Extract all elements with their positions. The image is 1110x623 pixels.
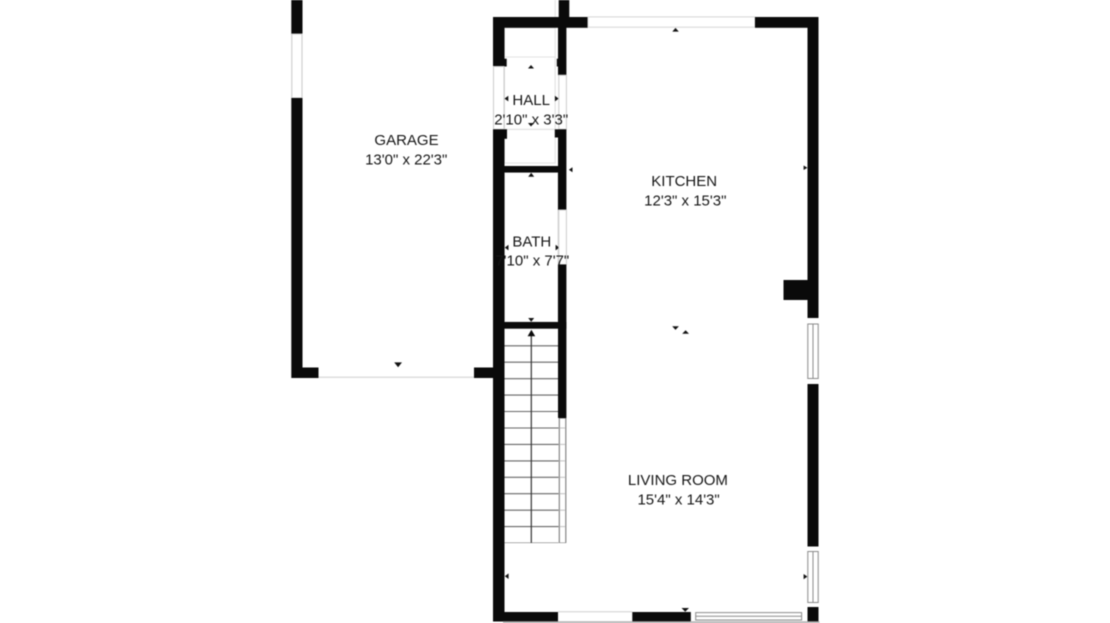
svg-text:LIVING ROOM: LIVING ROOM xyxy=(628,472,728,489)
svg-text:KITCHEN: KITCHEN xyxy=(651,173,717,190)
svg-text:BATH: BATH xyxy=(512,234,551,251)
svg-text:13'0" x 22'3": 13'0" x 22'3" xyxy=(365,151,447,168)
svg-text:7'10" x 7'7": 7'10" x 7'7" xyxy=(495,252,569,269)
svg-text:HALL: HALL xyxy=(512,92,550,109)
svg-text:2'10" x 3'3": 2'10" x 3'3" xyxy=(494,111,568,128)
svg-text:GARAGE: GARAGE xyxy=(374,132,438,149)
svg-text:15'4" x 14'3": 15'4" x 14'3" xyxy=(637,491,719,508)
svg-text:12'3" x 15'3": 12'3" x 15'3" xyxy=(644,192,726,209)
